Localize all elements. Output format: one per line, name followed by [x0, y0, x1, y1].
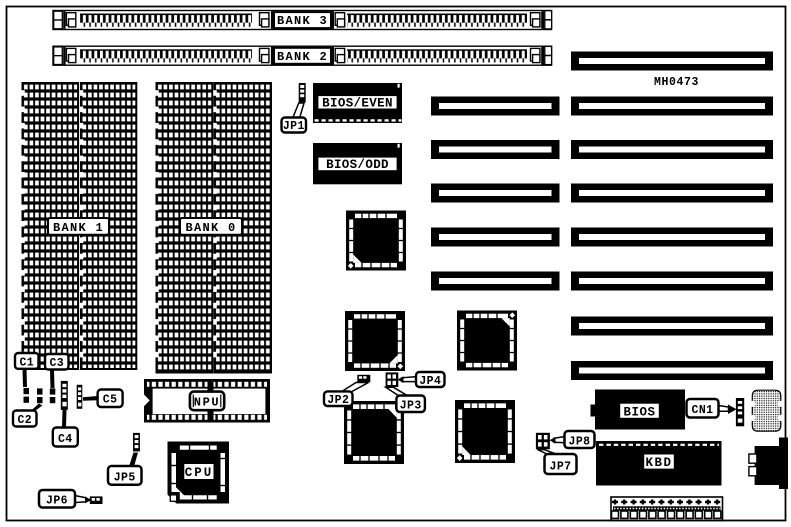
svg-text:C3: C3 [49, 357, 64, 370]
svg-text:JP3: JP3 [400, 399, 422, 412]
svg-text:JP5: JP5 [114, 471, 136, 484]
svg-text:JP2: JP2 [327, 394, 349, 407]
svg-text:JP1: JP1 [283, 120, 305, 133]
svg-text:BIOS: BIOS [623, 405, 655, 419]
svg-text:BANK 1: BANK 1 [53, 221, 104, 235]
svg-text:KBD: KBD [645, 456, 672, 470]
svg-text:BANK 2: BANK 2 [277, 50, 328, 64]
svg-text:JP8: JP8 [569, 435, 591, 448]
svg-text:BIOS/ODD: BIOS/ODD [326, 158, 389, 172]
svg-text:JP7: JP7 [550, 460, 572, 473]
svg-text:BIOS/EVEN: BIOS/EVEN [322, 97, 393, 111]
svg-text:BANK 3: BANK 3 [277, 14, 328, 28]
svg-text:NPU: NPU [194, 396, 220, 410]
svg-text:C4: C4 [58, 433, 73, 446]
svg-text:C1: C1 [19, 356, 34, 369]
svg-text:CPU: CPU [185, 466, 214, 480]
svg-text:C5: C5 [103, 394, 118, 407]
svg-text:BANK 0: BANK 0 [185, 221, 236, 235]
svg-text:MH0473: MH0473 [654, 76, 699, 89]
svg-text:CN1: CN1 [692, 404, 714, 417]
svg-text:JP6: JP6 [46, 495, 68, 508]
svg-text:JP4: JP4 [419, 375, 441, 388]
svg-text:C2: C2 [17, 414, 32, 427]
